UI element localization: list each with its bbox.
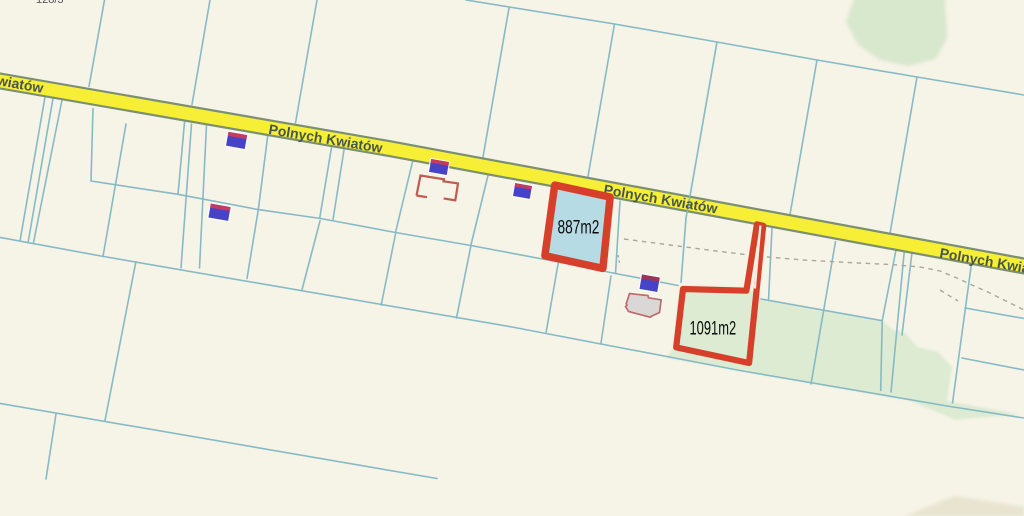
svg-text:128/3: 128/3 (36, 0, 64, 6)
svg-text:887m2: 887m2 (558, 216, 600, 238)
svg-text:1091m2: 1091m2 (690, 318, 737, 339)
